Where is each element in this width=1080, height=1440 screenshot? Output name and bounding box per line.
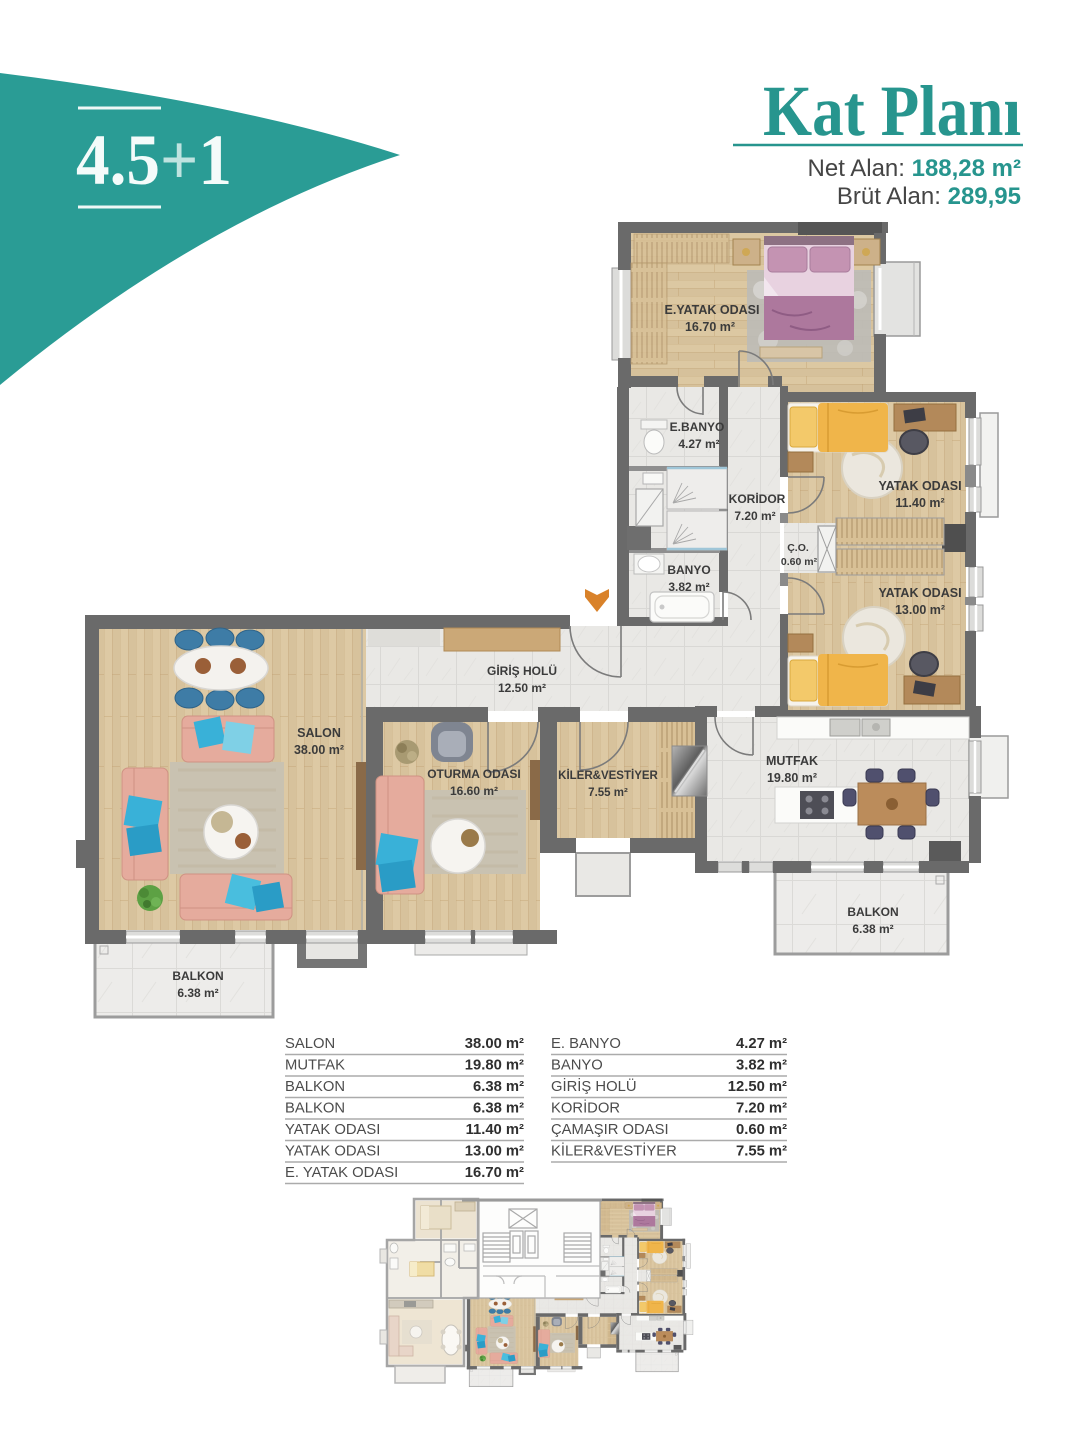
svg-text:38.00 m²: 38.00 m² (465, 1036, 524, 1052)
svg-text:7.55 m²: 7.55 m² (736, 1144, 787, 1160)
svg-text:38.00 m²: 38.00 m² (294, 743, 344, 757)
svg-text:SALON: SALON (297, 726, 341, 740)
svg-text:16.60 m²: 16.60 m² (450, 784, 498, 798)
svg-text:6.38 m²: 6.38 m² (473, 1101, 524, 1117)
svg-text:Brüt Alan: 289,95: Brüt Alan: 289,95 (837, 183, 1021, 210)
svg-text:4.5+1: 4.5+1 (76, 120, 232, 200)
svg-text:4.27 m²: 4.27 m² (736, 1036, 787, 1052)
svg-text:6.38 m²: 6.38 m² (473, 1079, 524, 1095)
svg-text:BANYO: BANYO (667, 563, 710, 577)
svg-text:7.55 m²: 7.55 m² (588, 787, 628, 799)
svg-text:BALKON: BALKON (847, 905, 898, 919)
svg-text:SALON: SALON (285, 1036, 335, 1052)
svg-text:GİRİŞ HOLÜ: GİRİŞ HOLÜ (551, 1077, 637, 1095)
svg-text:12.50 m²: 12.50 m² (498, 681, 546, 695)
svg-text:YATAK ODASI: YATAK ODASI (878, 586, 961, 600)
svg-text:KİLER&VESTİYER: KİLER&VESTİYER (551, 1142, 677, 1160)
svg-text:11.40 m²: 11.40 m² (895, 496, 944, 510)
svg-text:11.40 m²: 11.40 m² (466, 1122, 524, 1138)
svg-text:Net Alan: 188,28 m²: Net Alan: 188,28 m² (808, 155, 1021, 182)
svg-text:BALKON: BALKON (285, 1079, 345, 1095)
svg-text:6.38 m²: 6.38 m² (852, 922, 893, 936)
svg-text:12.50 m²: 12.50 m² (728, 1079, 787, 1095)
svg-text:7.20 m²: 7.20 m² (734, 509, 775, 523)
svg-text:16.70 m²: 16.70 m² (465, 1165, 524, 1181)
svg-text:YATAK ODASI: YATAK ODASI (878, 479, 961, 493)
svg-text:7.20 m²: 7.20 m² (736, 1101, 787, 1117)
svg-text:KORİDOR: KORİDOR (729, 491, 786, 506)
svg-text:19.80 m²: 19.80 m² (767, 771, 817, 785)
svg-text:3.82 m²: 3.82 m² (736, 1058, 787, 1074)
svg-text:13.00 m²: 13.00 m² (895, 603, 945, 617)
svg-text:E.YATAK ODASI: E.YATAK ODASI (665, 303, 760, 317)
svg-text:0.60 m²: 0.60 m² (781, 556, 818, 568)
svg-text:E. YATAK ODASI: E. YATAK ODASI (285, 1165, 398, 1181)
svg-text:ÇAMAŞIR ODASI: ÇAMAŞIR ODASI (551, 1122, 669, 1138)
svg-text:4.27 m²: 4.27 m² (678, 437, 719, 451)
svg-text:OTURMA ODASI: OTURMA ODASI (427, 767, 521, 781)
svg-text:YATAK ODASI: YATAK ODASI (285, 1122, 380, 1138)
svg-text:0.60 m²: 0.60 m² (736, 1122, 787, 1138)
svg-text:19.80 m²: 19.80 m² (465, 1058, 524, 1074)
svg-text:MUTFAK: MUTFAK (285, 1058, 345, 1074)
svg-text:Ç.O.: Ç.O. (787, 542, 809, 554)
svg-text:16.70 m²: 16.70 m² (685, 320, 735, 334)
svg-text:Kat Planı: Kat Planı (763, 71, 1021, 151)
svg-text:13.00 m²: 13.00 m² (465, 1144, 524, 1160)
svg-text:YATAK ODASI: YATAK ODASI (285, 1144, 380, 1160)
svg-text:KİLER&VESTİYER: KİLER&VESTİYER (558, 769, 658, 782)
svg-text:BALKON: BALKON (285, 1101, 345, 1117)
svg-text:E.BANYO: E.BANYO (670, 420, 725, 434)
svg-text:MUTFAK: MUTFAK (766, 754, 818, 768)
svg-text:6.38 m²: 6.38 m² (177, 986, 218, 1000)
svg-text:KORİDOR: KORİDOR (551, 1099, 620, 1117)
svg-text:BANYO: BANYO (551, 1058, 603, 1074)
svg-text:E. BANYO: E. BANYO (551, 1036, 621, 1052)
svg-text:GİRİŞ HOLÜ: GİRİŞ HOLÜ (487, 663, 557, 678)
svg-text:3.82 m²: 3.82 m² (668, 580, 709, 594)
svg-text:BALKON: BALKON (172, 969, 223, 983)
